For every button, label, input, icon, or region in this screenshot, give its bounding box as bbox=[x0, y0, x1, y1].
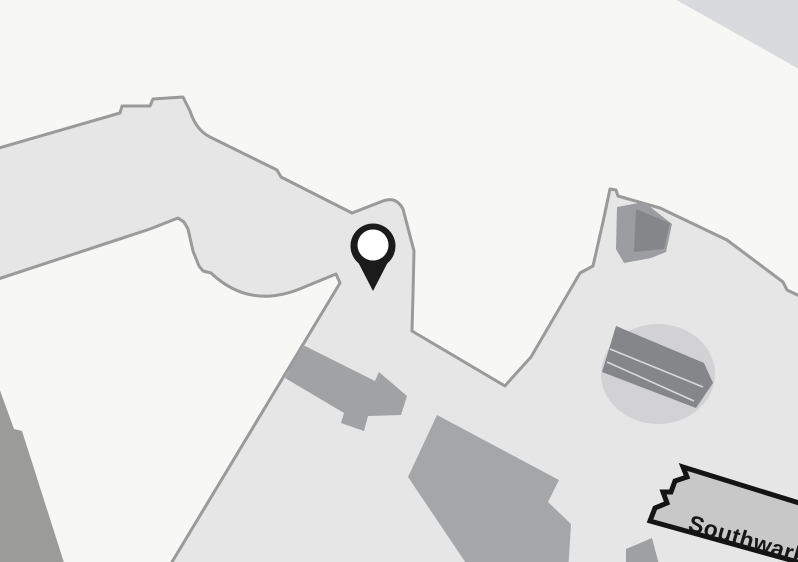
map-svg[interactable]: Southwark bbox=[0, 0, 798, 562]
pin-center bbox=[358, 230, 389, 261]
map-canvas[interactable]: Southwark bbox=[0, 0, 798, 562]
